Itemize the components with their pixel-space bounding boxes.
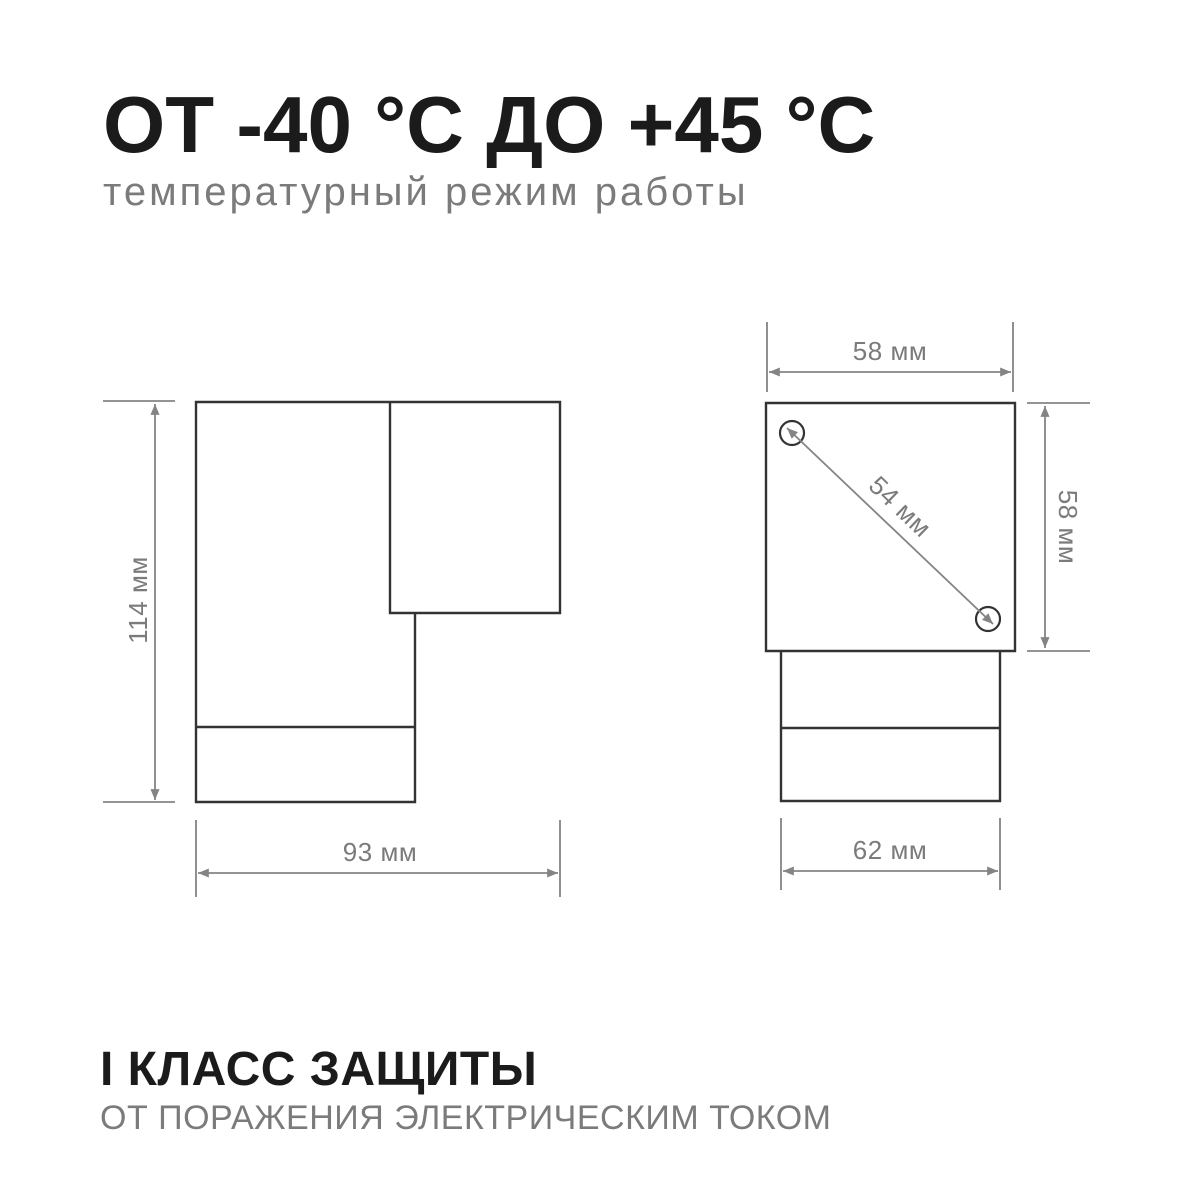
front-view-diagonal-label: 54 мм bbox=[863, 470, 937, 543]
dimension-drawings: 114 мм 93 мм 54 мм 58 мм bbox=[0, 0, 1200, 1200]
front-view-base-width-label: 62 мм bbox=[853, 835, 927, 865]
side-view-height-label: 114 мм bbox=[123, 556, 153, 643]
front-view-diagonal-dimension: 54 мм bbox=[787, 428, 993, 624]
protection-class-subtitle: ОТ ПОРАЖЕНИЯ ЭЛЕКТРИЧЕСКИМ ТОКОМ bbox=[100, 1101, 831, 1135]
front-view-outline bbox=[766, 403, 1015, 801]
front-view-base-width-dimension: 62 мм bbox=[781, 818, 1000, 890]
side-view-drawing: 114 мм 93 мм bbox=[103, 401, 560, 897]
front-view-top-width-dimension: 58 мм bbox=[767, 322, 1013, 392]
diagonal-dimension-arrow-line bbox=[787, 428, 993, 624]
protection-class-block: I КЛАСС ЗАЩИТЫ ОТ ПОРАЖЕНИЯ ЭЛЕКТРИЧЕСКИ… bbox=[100, 1046, 831, 1135]
front-view-drawing: 54 мм 58 мм 58 мм 62 мм bbox=[766, 322, 1090, 890]
side-view-width-label: 93 мм bbox=[343, 837, 417, 867]
side-view-outline bbox=[196, 402, 560, 802]
front-view-top-width-label: 58 мм bbox=[853, 336, 927, 366]
side-view-width-dimension: 93 мм bbox=[196, 820, 560, 897]
front-view-height-dimension: 58 мм bbox=[1027, 403, 1090, 651]
front-view-height-label: 58 мм bbox=[1053, 490, 1083, 564]
side-view-height-dimension: 114 мм bbox=[103, 401, 175, 802]
protection-class-title: I КЛАСС ЗАЩИТЫ bbox=[100, 1046, 831, 1094]
